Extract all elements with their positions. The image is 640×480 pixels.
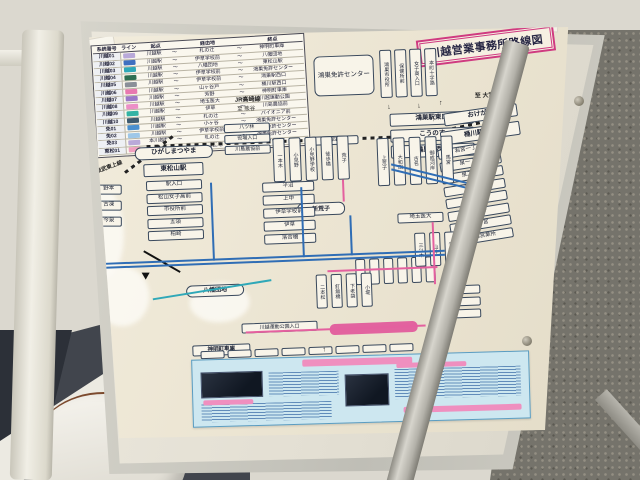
stop-box: 役場入口 bbox=[224, 133, 270, 144]
line-color-swatch bbox=[127, 118, 139, 124]
stop-box-unreadable bbox=[362, 344, 386, 353]
dest-label-kumagaya: 至 熊谷 bbox=[237, 104, 255, 113]
konosu-checkpoint-stops: 鴻巣市役所 保健所前 女子高入口 本町十字路 bbox=[379, 48, 438, 98]
line-color-swatch bbox=[128, 132, 140, 138]
stop-box: 保健所前 bbox=[394, 49, 408, 97]
matsuyama-stop-column: 駅入口 松山女子高前 市役所前 五領 柏崎 bbox=[146, 179, 204, 241]
station-higashimatsuyama: ひがしまつやま bbox=[135, 145, 213, 161]
stop-box: 荒子 bbox=[336, 135, 350, 179]
stop-box: 川島農協前 bbox=[225, 144, 271, 155]
stop-box-unreadable bbox=[397, 257, 408, 283]
line-color-swatch bbox=[126, 96, 138, 102]
stop-box: 小見野学校 bbox=[304, 137, 318, 181]
direction-arrow: ↓ bbox=[417, 103, 421, 110]
stop-box-unreadable bbox=[308, 346, 332, 355]
stop-box: 八ツ林 bbox=[224, 122, 270, 133]
line-color-swatch bbox=[124, 67, 136, 73]
line-color-swatch bbox=[124, 74, 136, 80]
line-color-swatch bbox=[125, 82, 137, 88]
frame-bolt bbox=[574, 96, 584, 106]
stop-box: 小見野 bbox=[288, 137, 302, 181]
stop-box: 平沼 bbox=[262, 181, 314, 193]
route-line-blue bbox=[210, 183, 215, 261]
stop-box: 一本木 bbox=[272, 138, 286, 182]
route-number: 東松01 bbox=[99, 147, 127, 155]
stop-box: 女子高入口 bbox=[409, 49, 423, 97]
kawajima-stop-row-1: 一本木 小見野 小見野学校 徒歩橋 荒子 bbox=[272, 135, 350, 182]
stop-konosu-license-center: 鴻巣免許センター bbox=[313, 54, 374, 96]
stop-saitama-idai: 埼玉医大 bbox=[397, 212, 443, 224]
stop-box: 徒歩橋 bbox=[320, 136, 334, 180]
stop-box: 大和田 bbox=[392, 137, 406, 185]
photo-of-bus-route-signboard: 川越営業事務所路線図 系統番号 ライン 起点 経由地 終点 川越01 川越駅 〜… bbox=[0, 0, 640, 480]
stop-box: 市役所前 bbox=[147, 204, 203, 216]
line-color-swatch bbox=[127, 125, 139, 131]
stop-box-unreadable bbox=[227, 349, 251, 358]
stop-box: 小堤 bbox=[361, 273, 373, 307]
route-line-blue bbox=[349, 215, 353, 255]
stop-box: 五領 bbox=[147, 217, 203, 229]
stop-box: 下老袋 bbox=[346, 273, 358, 307]
stop-box: 古名 bbox=[408, 137, 422, 185]
stop-box: 本町十字路 bbox=[424, 48, 438, 96]
bus-photo bbox=[200, 371, 263, 399]
line-color-swatch bbox=[126, 111, 138, 117]
direction-arrow: ↓ bbox=[387, 104, 391, 111]
line-color-swatch bbox=[126, 103, 138, 109]
stop-box: 上中 bbox=[263, 194, 315, 206]
map-title: 川越営業事務所路線図 bbox=[419, 27, 553, 64]
stop-box-unreadable bbox=[281, 347, 305, 356]
stop-box: 伊草 bbox=[264, 220, 316, 232]
notice-poster bbox=[191, 350, 531, 427]
stop-box-unreadable bbox=[200, 350, 224, 359]
stop-box: 駅入口 bbox=[146, 179, 202, 191]
stop-box-unreadable bbox=[335, 345, 359, 354]
stop-box-unreadable bbox=[389, 343, 413, 352]
stop-box-unreadable bbox=[254, 348, 278, 357]
stop-box-unreadable bbox=[383, 258, 394, 284]
station-higashimatsuyama-eki: 東松山駅 bbox=[143, 162, 203, 177]
rail-label-jr: JR高崎線 bbox=[235, 94, 261, 104]
map-title-box: 川越営業事務所路線図 bbox=[416, 23, 556, 67]
stop-box: 二本松 bbox=[316, 274, 328, 308]
poster-text-block bbox=[269, 371, 340, 397]
stop-box: 松山女子高前 bbox=[146, 192, 202, 204]
frame-bolt bbox=[522, 336, 532, 346]
kawajima-stop-row-2: 上荒子 大和田 古名 御成河岸 馬宮 bbox=[376, 135, 454, 186]
direction-arrow: ↑ bbox=[322, 346, 326, 353]
direction-arrow: ↑ bbox=[439, 100, 443, 107]
stop-box: 伊草学校前 bbox=[263, 207, 315, 219]
route-line-pink bbox=[342, 180, 345, 202]
kawajima-left-stops: 八ツ林 役場入口 川島農協前 bbox=[224, 122, 271, 155]
stop-box: 鴻巣市役所 bbox=[379, 50, 393, 98]
stop-box: 釘無橋 bbox=[331, 274, 343, 308]
bus-photo bbox=[345, 373, 390, 406]
stop-box: 上荒子 bbox=[376, 138, 390, 186]
stop-box: 柏崎 bbox=[148, 229, 204, 241]
kawajima-mid-stops: 平沼 上中 伊草学校前 伊草 落合橋 bbox=[262, 181, 316, 245]
south-stop-row: 二本松 釘無橋 下老袋 小堤 bbox=[316, 273, 373, 309]
stop-box: 落合橋 bbox=[264, 233, 316, 245]
line-color-swatch bbox=[123, 60, 135, 66]
line-color-swatch bbox=[123, 53, 135, 59]
line-color-swatch bbox=[125, 89, 137, 95]
line-color-swatch bbox=[128, 140, 140, 146]
direction-arrow: ↑ bbox=[432, 116, 436, 123]
